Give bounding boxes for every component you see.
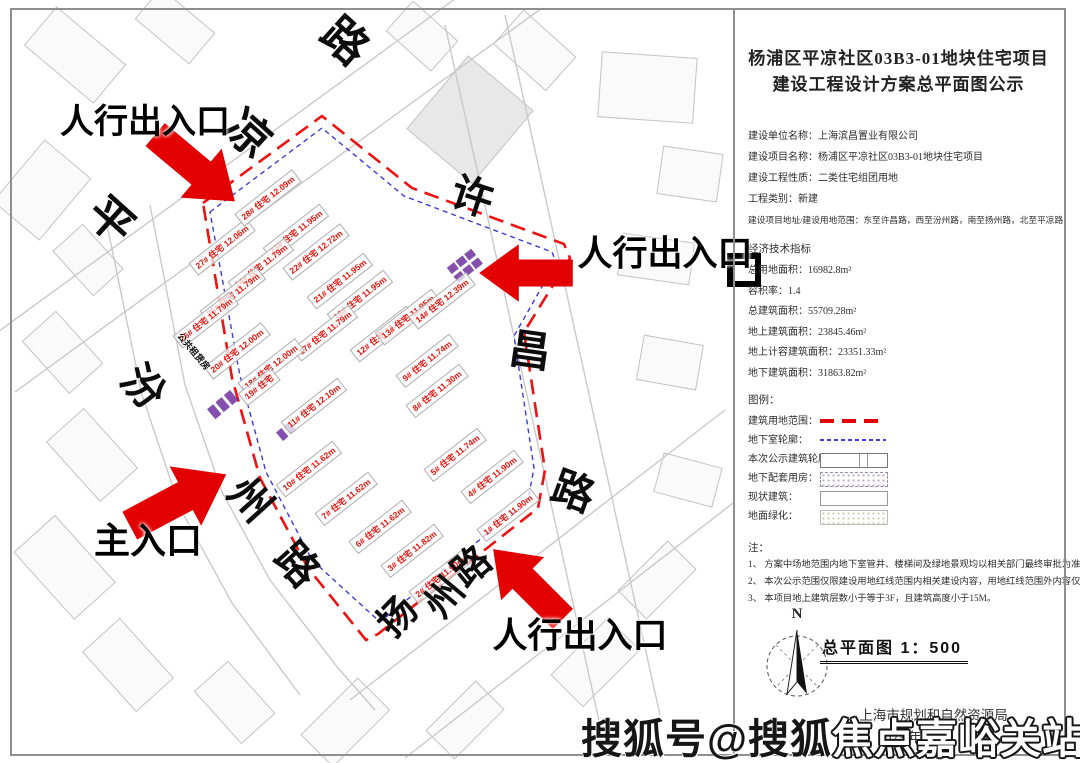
- project-info-list: 建设单位名称：上海滨昌置业有限公司建设项目名称：杨浦区平凉社区03B3-01地块…: [748, 126, 1054, 231]
- compass-needle-light: [787, 630, 797, 694]
- indicator-line: 总建筑面积：55709.28m²: [748, 302, 1054, 323]
- project-info-line: 建设项目名称：杨浦区平凉社区03B3-01地块住宅项目: [748, 147, 1054, 168]
- sw-plain-icon: [820, 491, 888, 506]
- page-title: 杨浦区平凉社区03B3-01地块住宅项目 建设工程设计方案总平面图公示: [735, 46, 1062, 98]
- site-plan-map: 27# 住宅 12.06m28# 住宅 12.09m23# 住宅 11.95m2…: [0, 0, 733, 763]
- site-plan-notice-page: 杨浦区平凉社区03B3-01地块住宅项目 建设工程设计方案总平面图公示 建设单位…: [0, 0, 1080, 763]
- sw-red-dash-icon: [820, 419, 886, 423]
- legend-label: 地下室轮廓：: [748, 435, 808, 446]
- project-info-line: 建设单位名称：上海滨昌置业有限公司: [748, 126, 1054, 147]
- legend-row: 地下配套用房：: [748, 469, 1054, 488]
- entrance-label: 主入口: [94, 523, 202, 559]
- notes-heading: 注：: [748, 540, 769, 555]
- compass-needle-dark: [797, 630, 807, 694]
- legend-row: 本次公示建筑轮廓：: [748, 450, 1054, 469]
- legend-heading: 图例：: [748, 392, 780, 407]
- entrance-label: 人行出入口: [577, 237, 752, 272]
- sw-blue-dash-icon: [820, 439, 886, 441]
- legend-list: 建筑用地范围：地下室轮廓：本次公示建筑轮廓：地下配套用房：现状建筑：地面绿化：: [748, 412, 1054, 526]
- sw-outline-icon: [820, 453, 888, 468]
- legend-label: 现状建筑：: [748, 492, 798, 503]
- watermark: 搜狐号@搜狐焦点嘉峪关站: [581, 705, 1080, 763]
- indicator-line: 地上建筑面积：23845.46m²: [748, 323, 1054, 344]
- arrow-pedestrian-east: [479, 244, 573, 302]
- project-info-line: 建设工程性质：二类住宅组团用地: [748, 168, 1054, 189]
- scale-label: 总平面图 1：500: [820, 634, 968, 664]
- entrance-label: 人行出入口: [60, 105, 230, 139]
- project-info-line: 建设项目地址/建设用地范围：东至许昌路，西至汾州路，南至扬州路，北至平凉路: [748, 210, 1054, 231]
- legend-label: 建筑用地范围：: [748, 416, 818, 427]
- indicator-line: 地下建筑面积：31863.82m²: [748, 364, 1054, 385]
- road-name-char: 昌: [506, 327, 553, 374]
- watermark-part2: 焦点嘉峪关站: [832, 716, 1080, 762]
- entrance-label: 人行出入口: [492, 619, 667, 654]
- indicator-line: 容积率：1.4: [748, 282, 1054, 303]
- indicator-line: 地上计容建筑面积：23351.33m²: [748, 343, 1054, 364]
- legend-row: 地下室轮廓：: [748, 431, 1054, 450]
- note-line: 1、 方案中场地范围内地下室管井、楼梯间及绿地景观均以相关部门最终审批为准。: [748, 557, 1058, 574]
- info-panel: 杨浦区平凉社区03B3-01地块住宅项目 建设工程设计方案总平面图公示 建设单位…: [735, 8, 1062, 754]
- legend-label: 地面绿化：: [748, 511, 798, 522]
- project-info-line: 工程类别：新建: [748, 189, 1054, 210]
- compass-n-label: N: [792, 606, 803, 622]
- notes-list: 1、 方案中场地范围内地下室管井、楼梯间及绿地景观均以相关部门最终审批为准。2、…: [748, 557, 1058, 608]
- sw-green-dots-icon: [820, 510, 888, 525]
- indicator-line: 总用地面积：16982.8m²: [748, 261, 1054, 282]
- legend-row: 现状建筑：: [748, 488, 1054, 507]
- indicators-list: 总用地面积：16982.8m²容积率：1.4总建筑面积：55709.28m²地上…: [748, 261, 1054, 384]
- watermark-part1: 搜狐号@搜狐: [581, 716, 832, 762]
- indicators-heading: 经济技术指标: [748, 241, 811, 256]
- legend-label: 地下配套用房：: [748, 473, 818, 484]
- note-line: 2、 本次公示范围仅限建设用地红线范围内相关建设内容，用地红线范围外内容仅为示意…: [748, 574, 1058, 591]
- legend-row: 地面绿化：: [748, 507, 1054, 526]
- sw-purple-dots-icon: [820, 472, 888, 487]
- title-line-1: 杨浦区平凉社区03B3-01地块住宅项目: [735, 46, 1062, 72]
- title-line-2: 建设工程设计方案总平面图公示: [735, 72, 1062, 98]
- legend-row: 建筑用地范围：: [748, 412, 1054, 431]
